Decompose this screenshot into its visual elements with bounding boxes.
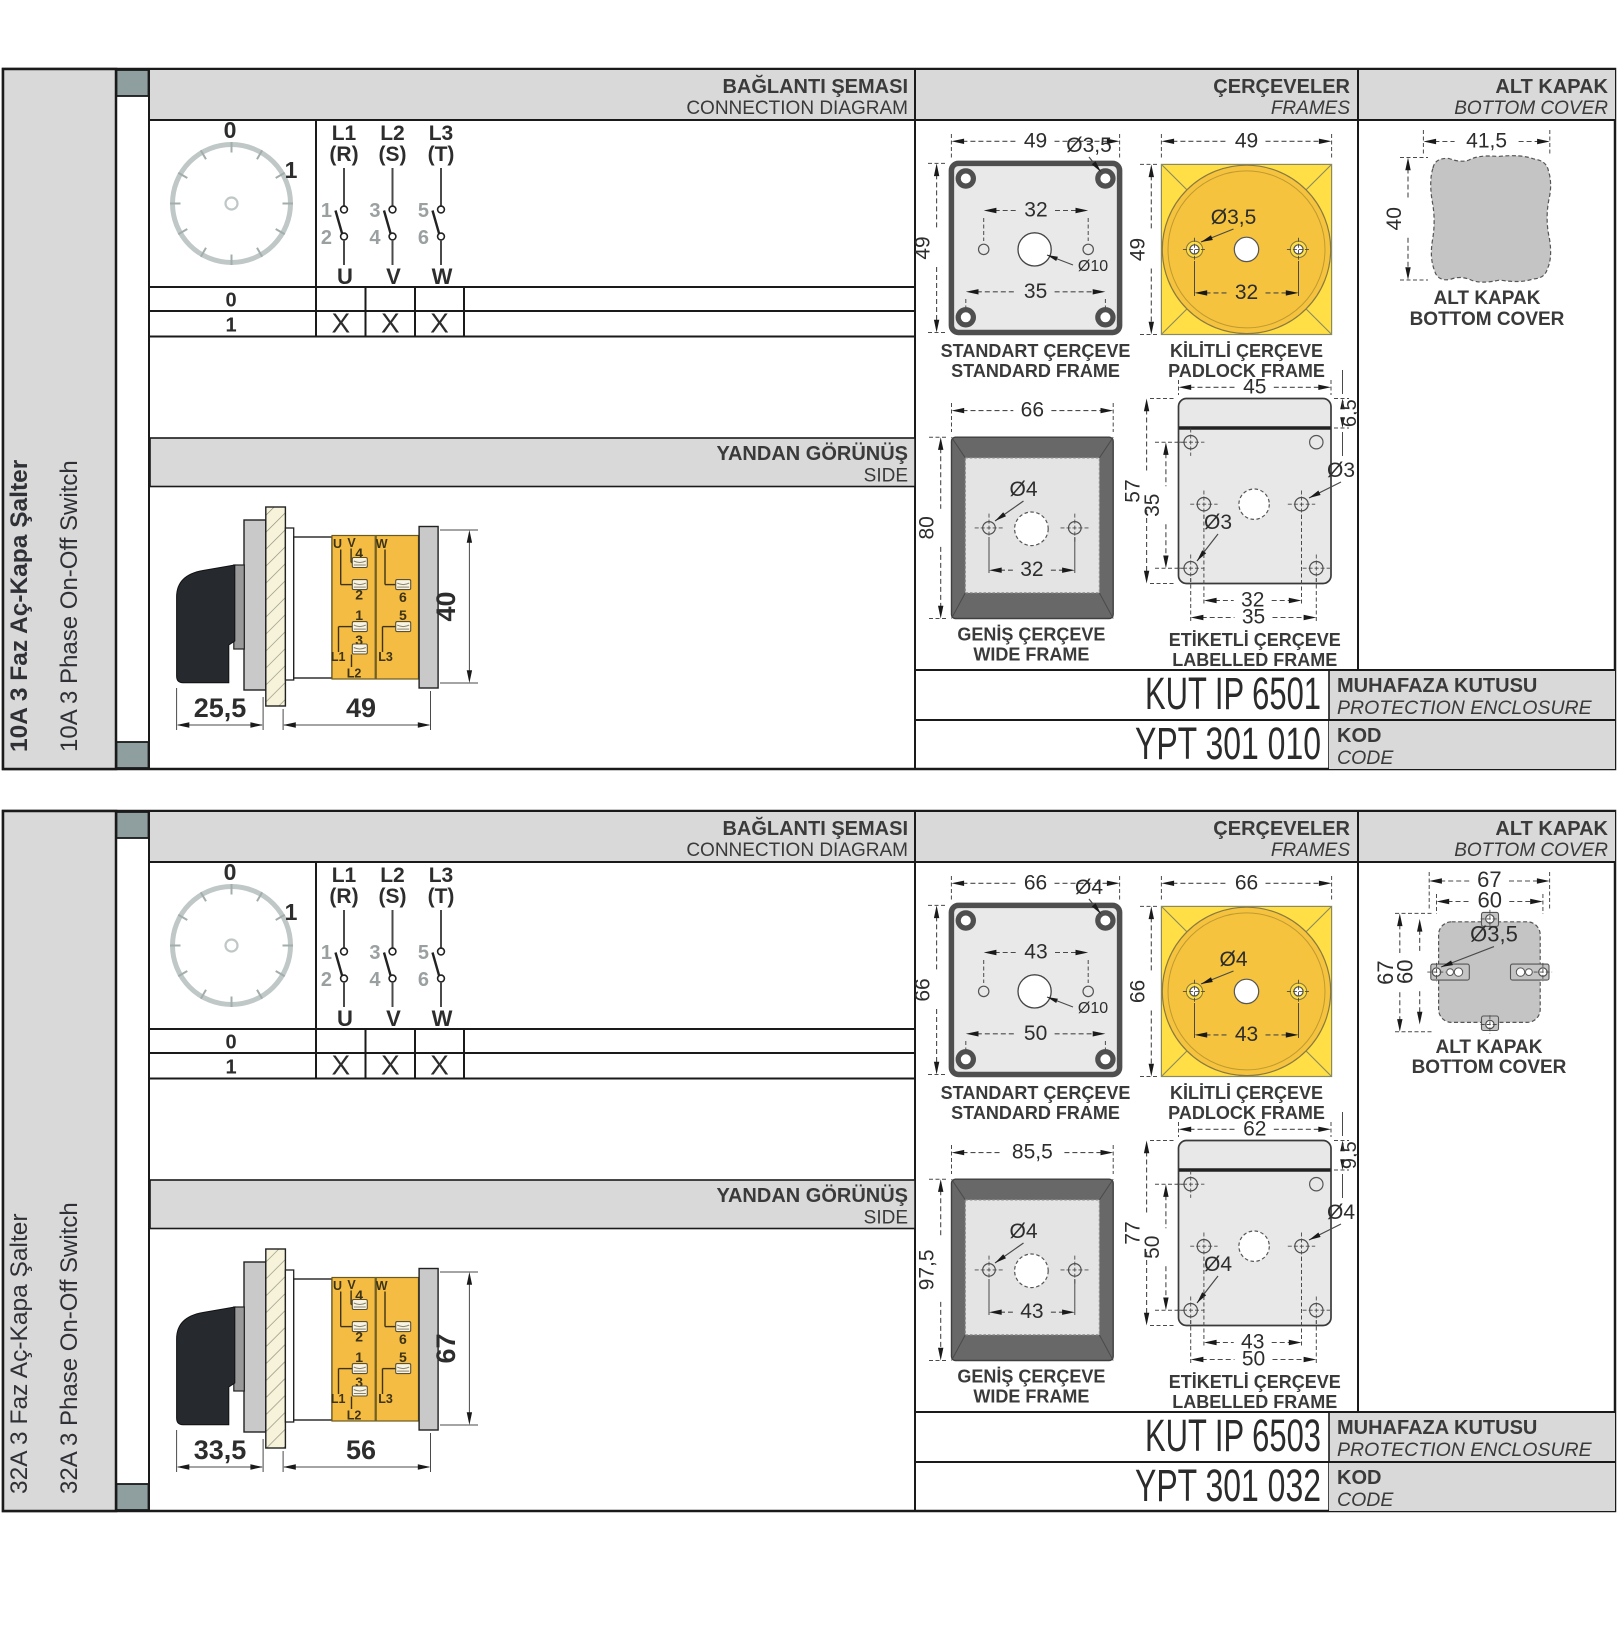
svg-text:66: 66 — [912, 978, 935, 1001]
svg-text:L2: L2 — [380, 122, 405, 145]
svg-text:1: 1 — [285, 157, 298, 183]
svg-text:L1: L1 — [332, 864, 357, 887]
svg-text:60: 60 — [1477, 888, 1501, 913]
svg-text:GENİŞ ÇERÇEVE: GENİŞ ÇERÇEVE — [957, 1367, 1105, 1387]
svg-text:33,5: 33,5 — [194, 1435, 247, 1465]
svg-text:45: 45 — [1243, 375, 1266, 398]
svg-text:Ø10: Ø10 — [1078, 1000, 1108, 1017]
svg-text:BOTTOM COVER: BOTTOM COVER — [1454, 98, 1608, 119]
svg-text:ETİKETLİ ÇERÇEVE: ETİKETLİ ÇERÇEVE — [1169, 1372, 1341, 1392]
svg-text:2: 2 — [321, 227, 332, 249]
svg-text:LABELLED FRAME: LABELLED FRAME — [1172, 1392, 1337, 1412]
svg-text:40: 40 — [1383, 207, 1406, 230]
svg-text:49: 49 — [1235, 129, 1258, 152]
svg-text:6: 6 — [399, 589, 407, 605]
svg-text:KUT IP 6501: KUT IP 6501 — [1145, 668, 1321, 719]
svg-text:43: 43 — [1235, 1023, 1258, 1046]
svg-text:U: U — [333, 1279, 342, 1293]
svg-text:V: V — [386, 264, 401, 289]
svg-text:L1: L1 — [331, 1392, 346, 1406]
svg-text:32: 32 — [1024, 199, 1047, 222]
svg-text:(S): (S) — [379, 143, 407, 166]
svg-text:LABELLED FRAME: LABELLED FRAME — [1172, 650, 1337, 670]
svg-text:66: 66 — [1021, 399, 1044, 422]
svg-text:STANDARD FRAME: STANDARD FRAME — [951, 1103, 1120, 1123]
svg-text:W: W — [432, 1006, 453, 1031]
svg-text:4: 4 — [369, 969, 381, 991]
svg-text:KUT IP 6503: KUT IP 6503 — [1145, 1410, 1321, 1461]
svg-text:MUHAFAZA KUTUSU: MUHAFAZA KUTUSU — [1337, 675, 1537, 697]
svg-text:KOD: KOD — [1337, 725, 1381, 747]
svg-text:STANDART ÇERÇEVE: STANDART ÇERÇEVE — [941, 341, 1131, 361]
svg-text:32: 32 — [1020, 558, 1043, 581]
svg-text:1: 1 — [321, 200, 332, 222]
svg-text:1: 1 — [355, 607, 363, 623]
svg-text:X: X — [430, 308, 449, 339]
svg-text:(R): (R) — [329, 143, 358, 166]
svg-text:WIDE FRAME: WIDE FRAME — [973, 645, 1089, 665]
svg-text:85,5: 85,5 — [1012, 1141, 1053, 1164]
svg-text:L3: L3 — [429, 122, 454, 145]
svg-text:Ø3: Ø3 — [1327, 459, 1355, 482]
svg-text:5: 5 — [399, 1349, 407, 1365]
svg-text:0: 0 — [225, 1032, 236, 1054]
svg-text:3: 3 — [369, 200, 380, 222]
svg-text:35: 35 — [1242, 606, 1265, 629]
svg-text:Ø3,5: Ø3,5 — [1066, 134, 1112, 157]
svg-text:(R): (R) — [329, 885, 358, 908]
svg-text:U: U — [337, 264, 353, 289]
svg-text:0: 0 — [224, 117, 237, 143]
svg-text:X: X — [381, 1050, 400, 1081]
svg-text:2: 2 — [355, 1329, 363, 1345]
svg-text:66: 66 — [1126, 980, 1149, 1003]
svg-text:W: W — [376, 1279, 388, 1293]
svg-text:PROTECTION ENCLOSURE: PROTECTION ENCLOSURE — [1337, 697, 1593, 719]
svg-text:32A 3 Faz Aç-Kapa Şalter: 32A 3 Faz Aç-Kapa Şalter — [6, 1213, 33, 1494]
svg-text:U: U — [337, 1006, 353, 1031]
svg-text:ÇERÇEVELER: ÇERÇEVELER — [1213, 818, 1350, 840]
svg-text:0: 0 — [224, 859, 237, 885]
svg-text:X: X — [381, 308, 400, 339]
svg-text:2: 2 — [321, 969, 332, 991]
svg-text:L3: L3 — [378, 650, 393, 664]
svg-text:FRAMES: FRAMES — [1271, 98, 1351, 119]
svg-text:BAĞLANTI ŞEMASI: BAĞLANTI ŞEMASI — [722, 74, 908, 98]
svg-text:ALT KAPAK: ALT KAPAK — [1495, 76, 1608, 98]
svg-text:ALT KAPAK: ALT KAPAK — [1434, 288, 1541, 309]
svg-text:97,5: 97,5 — [916, 1249, 939, 1290]
svg-text:KİLİTLİ ÇERÇEVE: KİLİTLİ ÇERÇEVE — [1170, 341, 1323, 361]
svg-text:MUHAFAZA KUTUSU: MUHAFAZA KUTUSU — [1337, 1417, 1537, 1439]
svg-text:ALT KAPAK: ALT KAPAK — [1436, 1037, 1543, 1058]
svg-text:L3: L3 — [429, 864, 454, 887]
svg-text:1: 1 — [225, 1057, 236, 1079]
svg-text:L1: L1 — [332, 122, 357, 145]
svg-text:W: W — [376, 537, 388, 551]
svg-text:CODE: CODE — [1337, 1489, 1394, 1511]
svg-text:X: X — [331, 1050, 350, 1081]
svg-text:ALT KAPAK: ALT KAPAK — [1495, 818, 1608, 840]
svg-text:GENİŞ ÇERÇEVE: GENİŞ ÇERÇEVE — [957, 625, 1105, 645]
svg-text:STANDARD FRAME: STANDARD FRAME — [951, 361, 1120, 381]
svg-text:L2: L2 — [380, 864, 405, 887]
svg-text:1: 1 — [355, 1349, 363, 1365]
svg-text:40: 40 — [431, 591, 461, 621]
svg-text:1: 1 — [321, 942, 332, 964]
svg-text:CONNECTION DIAGRAM: CONNECTION DIAGRAM — [686, 98, 908, 119]
svg-text:6: 6 — [418, 227, 429, 249]
svg-text:V: V — [386, 1006, 401, 1031]
svg-text:10A 3 Phase On-Off Switch: 10A 3 Phase On-Off Switch — [56, 460, 83, 752]
svg-text:25,5: 25,5 — [194, 693, 247, 723]
svg-text:W: W — [432, 264, 453, 289]
svg-text:49: 49 — [346, 693, 376, 723]
svg-text:5: 5 — [418, 200, 429, 222]
svg-text:43: 43 — [1020, 1300, 1043, 1323]
svg-text:50: 50 — [1242, 1348, 1265, 1371]
svg-text:YPT 301 010: YPT 301 010 — [1135, 718, 1321, 769]
svg-text:(T): (T) — [428, 143, 455, 166]
svg-text:60: 60 — [1393, 959, 1418, 983]
svg-text:5: 5 — [399, 607, 407, 623]
svg-text:49: 49 — [912, 236, 935, 259]
svg-text:Ø10: Ø10 — [1078, 258, 1108, 275]
svg-text:Ø4: Ø4 — [1219, 948, 1247, 971]
svg-text:CONNECTION DIAGRAM: CONNECTION DIAGRAM — [686, 840, 908, 861]
svg-text:50: 50 — [1141, 1236, 1164, 1259]
svg-text:4: 4 — [369, 227, 381, 249]
svg-text:80: 80 — [916, 516, 939, 539]
svg-text:Ø3,5: Ø3,5 — [1211, 206, 1257, 229]
svg-text:Ø4: Ø4 — [1204, 1253, 1232, 1276]
svg-text:L3: L3 — [378, 1392, 393, 1406]
svg-text:49: 49 — [1126, 238, 1149, 261]
svg-text:66: 66 — [1024, 871, 1047, 894]
svg-text:L1: L1 — [331, 650, 346, 664]
svg-text:56: 56 — [346, 1435, 376, 1465]
svg-text:5: 5 — [418, 942, 429, 964]
svg-text:2: 2 — [355, 587, 363, 603]
svg-text:YPT 301 032: YPT 301 032 — [1135, 1460, 1321, 1511]
svg-text:SIDE: SIDE — [864, 466, 908, 487]
svg-text:BOTTOM COVER: BOTTOM COVER — [1410, 309, 1565, 330]
svg-text:KİLİTLİ ÇERÇEVE: KİLİTLİ ÇERÇEVE — [1170, 1083, 1323, 1103]
svg-text:BOTTOM COVER: BOTTOM COVER — [1454, 840, 1608, 861]
svg-text:X: X — [430, 1050, 449, 1081]
svg-text:ÇERÇEVELER: ÇERÇEVELER — [1213, 76, 1350, 98]
svg-text:32A 3 Phase On-Off Switch: 32A 3 Phase On-Off Switch — [56, 1202, 83, 1494]
svg-text:Ø4: Ø4 — [1327, 1201, 1355, 1224]
svg-text:10A 3 Faz Aç-Kapa Şalter: 10A 3 Faz Aç-Kapa Şalter — [6, 459, 33, 752]
svg-text:62: 62 — [1243, 1117, 1266, 1140]
svg-text:L2: L2 — [347, 1409, 362, 1423]
svg-text:BOTTOM COVER: BOTTOM COVER — [1412, 1057, 1567, 1078]
svg-text:CODE: CODE — [1337, 747, 1394, 769]
svg-text:U: U — [333, 537, 342, 551]
svg-text:1: 1 — [225, 315, 236, 337]
svg-text:6: 6 — [399, 1331, 407, 1347]
svg-text:50: 50 — [1024, 1022, 1047, 1045]
svg-text:(S): (S) — [379, 885, 407, 908]
svg-text:41,5: 41,5 — [1466, 130, 1507, 153]
svg-text:ETİKETLİ ÇERÇEVE: ETİKETLİ ÇERÇEVE — [1169, 630, 1341, 650]
svg-text:Ø4: Ø4 — [1009, 478, 1037, 501]
svg-text:Ø4: Ø4 — [1009, 1220, 1037, 1243]
svg-text:(T): (T) — [428, 885, 455, 908]
svg-text:FRAMES: FRAMES — [1271, 840, 1351, 861]
svg-text:Ø4: Ø4 — [1075, 876, 1103, 899]
svg-text:67: 67 — [431, 1333, 461, 1363]
svg-text:L2: L2 — [347, 667, 362, 681]
svg-text:43: 43 — [1024, 941, 1047, 964]
svg-text:66: 66 — [1235, 871, 1258, 894]
svg-text:6: 6 — [418, 969, 429, 991]
svg-text:49: 49 — [1024, 129, 1047, 152]
svg-text:SIDE: SIDE — [864, 1208, 908, 1229]
svg-text:32: 32 — [1235, 281, 1258, 304]
svg-text:1: 1 — [285, 899, 298, 925]
svg-text:Ø3: Ø3 — [1204, 511, 1232, 534]
svg-text:WIDE FRAME: WIDE FRAME — [973, 1387, 1089, 1407]
svg-text:0: 0 — [225, 290, 236, 312]
svg-text:X: X — [331, 308, 350, 339]
svg-text:9,5: 9,5 — [1339, 1141, 1361, 1169]
svg-text:3: 3 — [369, 942, 380, 964]
svg-text:35: 35 — [1141, 494, 1164, 517]
svg-text:PROTECTION ENCLOSURE: PROTECTION ENCLOSURE — [1337, 1439, 1593, 1461]
svg-text:Ø3,5: Ø3,5 — [1470, 922, 1518, 947]
svg-text:BAĞLANTI ŞEMASI: BAĞLANTI ŞEMASI — [722, 816, 908, 840]
svg-text:STANDART ÇERÇEVE: STANDART ÇERÇEVE — [941, 1083, 1131, 1103]
svg-text:6,5: 6,5 — [1339, 399, 1361, 427]
svg-text:YANDAN GÖRÜNÜŞ: YANDAN GÖRÜNÜŞ — [716, 442, 908, 465]
svg-text:KOD: KOD — [1337, 1467, 1381, 1489]
svg-text:35: 35 — [1024, 280, 1047, 303]
svg-text:YANDAN GÖRÜNÜŞ: YANDAN GÖRÜNÜŞ — [716, 1184, 908, 1207]
